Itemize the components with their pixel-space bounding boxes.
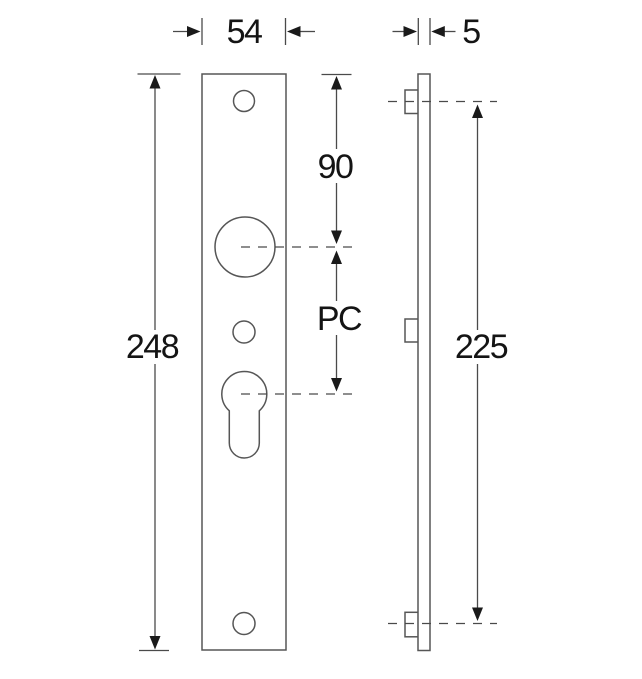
arrow-up-icon	[331, 76, 342, 90]
dim-fixing-centres: 225	[455, 105, 508, 622]
arrow-down-icon	[150, 636, 161, 650]
bottom-screw-boss	[405, 612, 418, 637]
fixing-centres-label: 225	[455, 328, 508, 366]
dim-plate-width: 54	[173, 13, 315, 51]
top-fixing-hole	[234, 91, 255, 112]
arrow-left-icon	[431, 26, 445, 37]
arrow-up-icon	[150, 75, 161, 89]
top-to-handle-label: 90	[318, 148, 353, 186]
side-view	[405, 74, 430, 651]
backplate-dimension-drawing: 54 5 248 90	[0, 0, 642, 679]
arrow-right-icon	[404, 26, 418, 37]
arrow-up-icon	[472, 105, 483, 119]
arrow-down-icon	[472, 608, 483, 622]
arrow-up-icon	[331, 251, 342, 265]
dim-top-to-handle: 90	[318, 75, 353, 245]
dim-handle-to-cylinder: PC	[317, 251, 362, 392]
dim-plate-thickness: 5	[393, 13, 481, 51]
plate-width-label: 54	[227, 13, 262, 51]
plate-thickness-label: 5	[462, 13, 480, 51]
middle-fixing-hole	[233, 321, 255, 343]
technical-drawing-canvas: 54 5 248 90	[0, 0, 642, 679]
dim-plate-height: 248	[126, 74, 181, 651]
handle-to-cylinder-label: PC	[317, 300, 362, 338]
front-view	[202, 74, 286, 650]
arrow-right-icon	[187, 26, 201, 37]
arrow-down-icon	[331, 231, 342, 245]
plate-height-label: 248	[126, 328, 179, 366]
bottom-fixing-hole	[233, 613, 255, 635]
arrow-down-icon	[331, 378, 342, 392]
front-plate-outline	[202, 74, 286, 650]
middle-screw-boss	[405, 319, 418, 342]
side-plate-outline	[418, 74, 430, 651]
arrow-left-icon	[287, 26, 301, 37]
